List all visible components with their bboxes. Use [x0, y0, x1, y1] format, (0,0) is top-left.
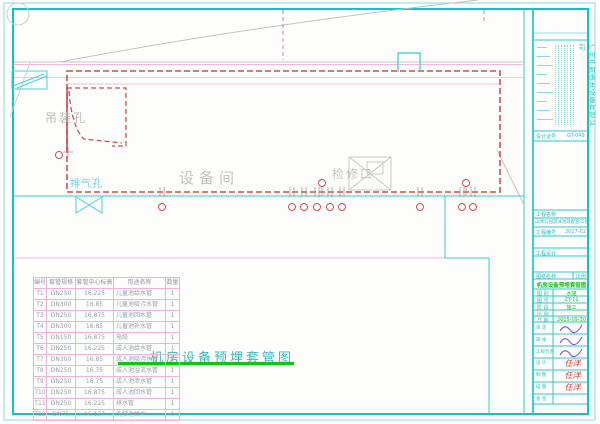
project-no-label: 工程编号 — [536, 229, 556, 236]
sleeve-marker — [159, 204, 166, 211]
tb-sign-label: 工程负责 — [536, 349, 554, 355]
table-cell: 1 — [166, 333, 180, 344]
table-row: T10DN25016.875成人池回水管1 — [34, 388, 180, 399]
label-exhaust-hole: 排气孔 — [70, 175, 103, 190]
table-cell: DN250 — [47, 311, 76, 322]
sleeve-marker — [56, 152, 63, 159]
table-cell: 16.85 — [76, 355, 114, 366]
tb-sign-label: 会 签 — [536, 396, 546, 402]
sleeve-marker — [314, 204, 321, 211]
table-cell: 16.225 — [76, 399, 114, 410]
table-cell: 成人池给水管 — [114, 344, 166, 355]
table-row: T5DN15016.875电缆1 — [34, 333, 180, 344]
table-cell: T5 — [34, 333, 47, 344]
tb-field-value: 水施 — [556, 290, 587, 297]
table-cell: 儿童池吸污水管 — [114, 300, 166, 311]
table-row: T7DN30016.85成人池吸污水管1 — [34, 355, 180, 366]
project-no-value: 2017-02 — [565, 229, 586, 235]
table-cell: 1 — [166, 410, 180, 421]
company-fineprint-line — [537, 110, 550, 111]
table-cell: 1 — [166, 289, 180, 300]
tb-field-value: 施工 — [556, 304, 587, 311]
tb-sign-value: 任洋 — [558, 370, 587, 381]
table-cell: 1 — [166, 366, 180, 377]
table-cell: 成人池吸污水管 — [114, 355, 166, 366]
table-cell: 排水管 — [114, 399, 166, 410]
table-cell: 1 — [166, 300, 180, 311]
col-header: 套管规格 — [47, 278, 76, 289]
table-cell: T11 — [34, 399, 47, 410]
signature-scribbles — [556, 322, 596, 362]
table-cell: DN300 — [47, 355, 76, 366]
table-cell: 1 — [166, 388, 180, 399]
sleeve-marker — [289, 204, 296, 211]
titleblock-drawing-name: 机房设备预埋套管图 — [535, 281, 588, 289]
sleeve-marker — [463, 180, 470, 187]
table-cell: 电缆 — [114, 333, 166, 344]
sheet-name-label: 图纸名称 — [536, 273, 556, 280]
project-name: 山体公园游泳池及配套工程 — [535, 219, 587, 225]
tb-sign-label: 描 图 — [536, 384, 546, 390]
table-cell: 1 — [166, 322, 180, 333]
col-header: 用途名称 — [114, 278, 166, 289]
table-cell: DN300 — [47, 322, 76, 333]
table-cell: 成人池回水管 — [114, 388, 166, 399]
table-cell: T9 — [34, 377, 47, 388]
table-cell: T4 — [34, 322, 47, 333]
table-cell: 16.75 — [76, 377, 114, 388]
table-cell: 成人池泄水管 — [114, 377, 166, 388]
company-fineprint-line — [537, 56, 550, 57]
sleeve-marker — [470, 204, 477, 211]
table-cell: 16.75 — [76, 366, 114, 377]
table-cell: T7 — [34, 355, 47, 366]
scale-label: 比例 — [576, 273, 586, 280]
table-cell: DN75 — [47, 410, 76, 421]
table-row: T4DN30016.85儿童池补水管1 — [34, 322, 180, 333]
table-cell: T10 — [34, 388, 47, 399]
col-header: 数量 — [166, 278, 180, 289]
table-row: T9DN25016.75成人池泄水管1 — [34, 377, 180, 388]
col-header: 编号 — [34, 278, 47, 289]
table-cell: 1 — [166, 377, 180, 388]
sleeve-marker — [339, 204, 346, 211]
sleeve-markers — [56, 152, 477, 211]
tb-field-label: 图 别 — [537, 290, 549, 297]
tb-field-value: ZY-11 — [556, 297, 587, 303]
table-cell: 16.225 — [76, 344, 114, 355]
table-cell: 1 — [166, 355, 180, 366]
company-fineprint-column — [570, 45, 571, 125]
company-fineprint-line — [537, 65, 553, 66]
company-fineprint-column — [564, 45, 565, 125]
table-cell: DN250 — [47, 289, 76, 300]
tb-sign-label: 审 核 — [536, 337, 546, 343]
company-fineprint-column — [567, 45, 568, 125]
table-row: T6DN25016.225成人池给水管1 — [34, 344, 180, 355]
drawing-sheet: 吊装孔 排气孔 设备间 检修口 机房设备预埋套管图 编号套管规格套管中心标高用途… — [0, 0, 600, 424]
table-cell: 16.875 — [76, 333, 114, 344]
company-fineprint-column — [555, 45, 556, 125]
table-row: T12DN7516.137洗脚池给水1 — [34, 410, 180, 421]
table-cell: T12 — [34, 410, 47, 421]
table-cell: 16.85 — [76, 322, 114, 333]
table-cell: 1 — [166, 311, 180, 322]
tb-sign-label: 制 图 — [536, 372, 546, 378]
exhaust-symbol — [76, 197, 89, 213]
cert-value: GT-049 — [567, 133, 585, 139]
sleeve-marker — [319, 180, 326, 187]
company-fineprint-line — [537, 74, 547, 75]
tb-field-label: 日 期 — [537, 317, 549, 324]
table-cell: 16.225 — [76, 289, 114, 300]
table-cell: 1 — [166, 399, 180, 410]
sleeve-ticks — [63, 147, 475, 197]
table-row: T3DN25016.875儿童池回水管1 — [34, 311, 180, 322]
table-cell: 洗脚池给水 — [114, 410, 166, 421]
sleeve-marker — [417, 204, 424, 211]
table-cell: 16.875 — [76, 311, 114, 322]
company-fineprint-column — [558, 45, 559, 125]
sleeve-marker — [327, 204, 334, 211]
table-row: T11DN25016.225排水管1 — [34, 399, 180, 410]
table-cell: DN250 — [47, 399, 76, 410]
table-cell: 儿童池回水管 — [114, 311, 166, 322]
sleeve-marker — [301, 204, 308, 211]
table-cell: T8 — [34, 366, 47, 377]
table-cell: 成人池溢流水管 — [114, 366, 166, 377]
company-fineprint-line — [537, 119, 553, 120]
table-cell: T6 — [34, 344, 47, 355]
design-label: 工程设计 — [536, 250, 556, 257]
tb-sign-value: 任洋 — [558, 382, 587, 393]
label-hoist-hole: 吊装孔 — [45, 109, 87, 126]
company-fineprint-line — [537, 83, 550, 84]
table-cell: T3 — [34, 311, 47, 322]
company-fineprint-line — [537, 47, 547, 48]
company-name: 广州中朗康体设备有限公司 — [576, 44, 596, 130]
table-cell: T1 — [34, 289, 47, 300]
sleeve-schedule-table: 编号套管规格套管中心标高用途名称数量 T1DN25016.225儿童池给水管1T… — [33, 277, 180, 421]
tb-field-label: 图 号 — [537, 297, 549, 304]
label-equipment-room: 设备间 — [179, 167, 239, 188]
table-cell: DN250 — [47, 388, 76, 399]
cert-label: 设计证号 — [536, 133, 556, 140]
company-fineprint-line — [537, 101, 547, 102]
table-header-row: 编号套管规格套管中心标高用途名称数量 — [34, 278, 180, 289]
table-cell: DN250 — [47, 366, 76, 377]
table-cell: 儿童池给水管 — [114, 289, 166, 300]
table-cell: DN250 — [47, 377, 76, 388]
equipment-room-outline — [67, 71, 500, 192]
table-cell: DN250 — [47, 344, 76, 355]
company-fineprint-line — [537, 92, 553, 93]
table-row: T2DN30016.85儿童池吸污水管1 — [34, 300, 180, 311]
table-cell: DN300 — [47, 300, 76, 311]
table-row: T1DN25016.225儿童池给水管1 — [34, 289, 180, 300]
table-cell: 儿童池补水管 — [114, 322, 166, 333]
table-cell: 16.85 — [76, 300, 114, 311]
table-cell: 16.137 — [76, 410, 114, 421]
company-fineprint-column — [561, 45, 562, 125]
tb-sign-label: 审 定 — [536, 325, 546, 331]
table-cell: DN150 — [47, 333, 76, 344]
tb-sign-label: 设 计 — [536, 360, 546, 366]
table-row: T8DN25016.75成人池溢流水管1 — [34, 366, 180, 377]
sleeve-marker — [459, 204, 466, 211]
company-fineprint-column — [573, 45, 574, 125]
project-name-label: 工程名称 — [536, 211, 556, 218]
table-cell: 16.875 — [76, 388, 114, 399]
table-cell: T2 — [34, 300, 47, 311]
col-header: 套管中心标高 — [76, 278, 114, 289]
table-cell: 1 — [166, 344, 180, 355]
label-access-port: 检修口 — [332, 165, 374, 182]
